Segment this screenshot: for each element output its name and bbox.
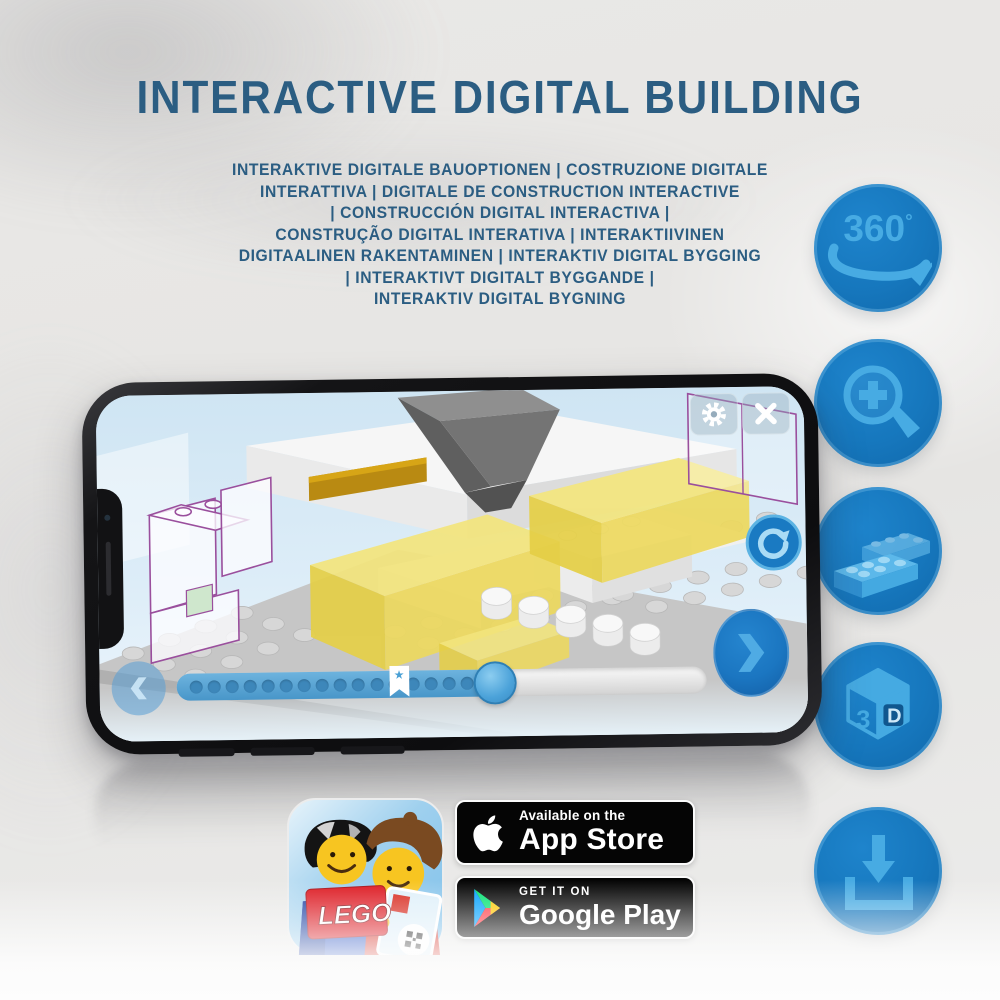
feature-zoom xyxy=(814,339,942,467)
svg-text:D: D xyxy=(887,705,901,727)
close-icon xyxy=(754,401,778,425)
svg-text:3: 3 xyxy=(856,706,870,734)
subtitle-line: INTERATTIVA | DIGITALE DE CONSTRUCTION I… xyxy=(139,182,861,204)
lego-logo: LEGO xyxy=(306,885,393,939)
close-button[interactable] xyxy=(742,392,791,435)
phone-side-button xyxy=(179,748,235,757)
progress-dot xyxy=(226,680,239,693)
google-play-line2: Google Play xyxy=(519,900,681,929)
feature-3d: 3 D xyxy=(814,642,942,770)
feature-download xyxy=(814,807,942,935)
page-title: INTERACTIVE DIGITAL BUILDING xyxy=(40,70,960,124)
subtitle-line: CONSTRUÇÃO DIGITAL INTERATIVA | INTERAKT… xyxy=(139,225,861,247)
phone-notch xyxy=(96,489,125,649)
speaker-slit xyxy=(106,542,112,596)
phone-screen: ★ xyxy=(96,386,809,742)
progress-dot xyxy=(280,679,293,692)
subtitle-line: INTERAKTIVE DIGITALE BAUOPTIONEN | COSTR… xyxy=(139,160,861,182)
lego-brick-icon xyxy=(822,495,934,607)
progress-dot xyxy=(190,680,203,693)
phone-reflection xyxy=(93,753,810,873)
360-rotate-arrow-icon xyxy=(824,242,932,302)
progress-dot xyxy=(298,679,311,692)
app-store-line2: App Store xyxy=(519,824,664,856)
google-play-badge[interactable]: GET IT ON Google Play xyxy=(455,876,695,939)
progress-dot xyxy=(244,680,257,693)
zoom-in-icon xyxy=(826,351,930,455)
phone-volume-button xyxy=(341,746,405,755)
subtitle-line: | INTERAKTIVT DIGITALT BYGGANDE | xyxy=(139,268,861,290)
green-brick xyxy=(186,584,212,616)
progress-dot xyxy=(334,678,347,691)
progress-dot xyxy=(352,678,365,691)
download-icon xyxy=(826,819,930,923)
progress-dot xyxy=(262,679,275,692)
google-play-icon xyxy=(457,889,519,927)
subtitle-block: INTERAKTIVE DIGITALE BAUOPTIONEN | COSTR… xyxy=(139,160,861,311)
apple-icon xyxy=(457,813,519,853)
progress-fill xyxy=(177,669,495,700)
phone-volume-button xyxy=(251,747,315,756)
subtitle-line: | CONSTRUCCIÓN DIGITAL INTERACTIVA | xyxy=(139,203,861,225)
lego-app-icon[interactable]: LEGO xyxy=(287,798,444,955)
page: INTERACTIVE DIGITAL BUILDING INTERAKTIVE… xyxy=(0,0,1000,1000)
google-play-line1: GET IT ON xyxy=(519,886,681,898)
app-store-line1: Available on the xyxy=(519,809,664,823)
rotate-icon xyxy=(755,524,791,560)
subtitle-line: INTERAKTIV DIGITAL BYGNING xyxy=(139,289,861,311)
progress-dot xyxy=(370,678,383,691)
progress-dot xyxy=(460,677,473,690)
camera-dot xyxy=(104,515,110,521)
subtitle-line: DIGITAALINEN RAKENTAMINEN | INTERAKTIV D… xyxy=(139,246,861,268)
feature-360-rotation: 360° xyxy=(814,184,942,312)
svg-text:LEGO: LEGO xyxy=(317,899,392,931)
feature-brick xyxy=(814,487,942,615)
progress-dot xyxy=(208,680,221,693)
progress-dot xyxy=(424,677,437,690)
progress-dot xyxy=(316,679,329,692)
progress-dot xyxy=(442,677,455,690)
chevron-right-icon xyxy=(734,630,769,676)
app-store-badge[interactable]: Available on the App Store xyxy=(455,800,695,865)
phone: ★ xyxy=(81,373,822,755)
chevron-left-icon xyxy=(129,675,149,701)
settings-button[interactable] xyxy=(690,393,739,436)
gear-icon xyxy=(699,399,729,429)
3d-cube-icon: 3 D xyxy=(820,648,936,764)
